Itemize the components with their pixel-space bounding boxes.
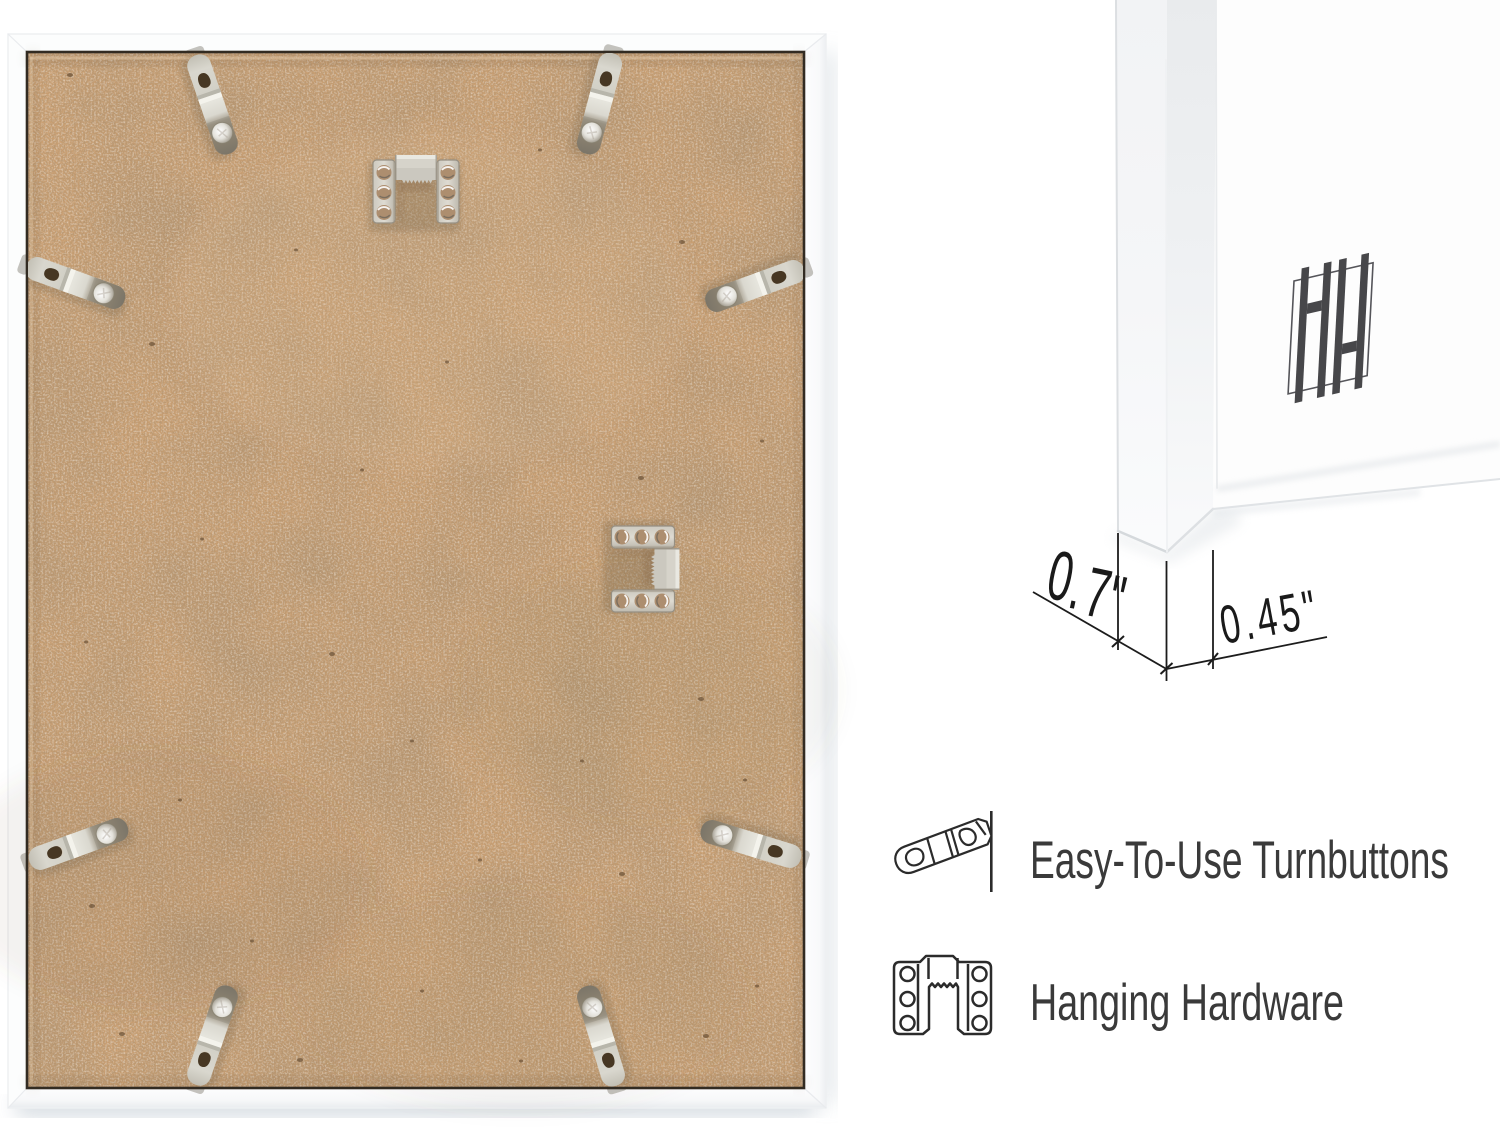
svg-text:Easy-To-Use Turnbuttons: Easy-To-Use Turnbuttons (1030, 831, 1449, 890)
svg-text:Hanging Hardware: Hanging Hardware (1030, 974, 1344, 1032)
